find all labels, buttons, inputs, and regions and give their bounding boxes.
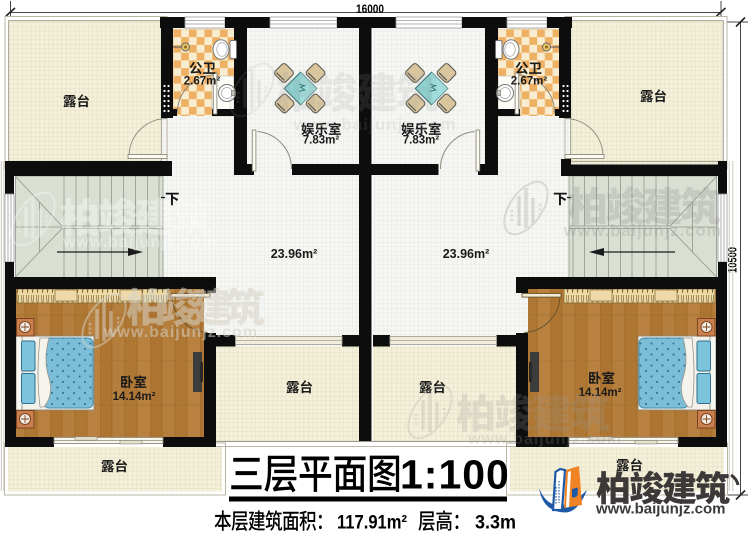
svg-text:3.3m: 3.3m bbox=[475, 513, 516, 534]
svg-text:7.83m²: 7.83m² bbox=[403, 135, 440, 147]
svg-text:117.91m²: 117.91m² bbox=[337, 513, 407, 534]
svg-text:www.baijunjz.com: www.baijunjz.com bbox=[62, 234, 217, 251]
svg-text:www.baijunjz.com: www.baijunjz.com bbox=[595, 501, 725, 518]
svg-text:2.67m²: 2.67m² bbox=[184, 76, 221, 88]
svg-text:14.14m²: 14.14m² bbox=[113, 391, 156, 403]
svg-text:www.baijunjz.com: www.baijunjz.com bbox=[467, 431, 622, 448]
svg-text:2.67m²: 2.67m² bbox=[511, 76, 548, 88]
svg-text:1:100: 1:100 bbox=[400, 452, 510, 498]
svg-text:23.96m²: 23.96m² bbox=[271, 247, 318, 261]
svg-text:www.baijunjz.com: www.baijunjz.com bbox=[293, 115, 457, 134]
svg-text:www.baijunjz.com: www.baijunjz.com bbox=[563, 222, 722, 240]
svg-text:7.83m²: 7.83m² bbox=[303, 135, 340, 147]
svg-text:www.baijunjz.com: www.baijunjz.com bbox=[103, 324, 258, 341]
svg-text:23.96m²: 23.96m² bbox=[443, 247, 490, 261]
svg-text:16000: 16000 bbox=[356, 4, 384, 16]
svg-text:14.14m²: 14.14m² bbox=[579, 387, 622, 399]
